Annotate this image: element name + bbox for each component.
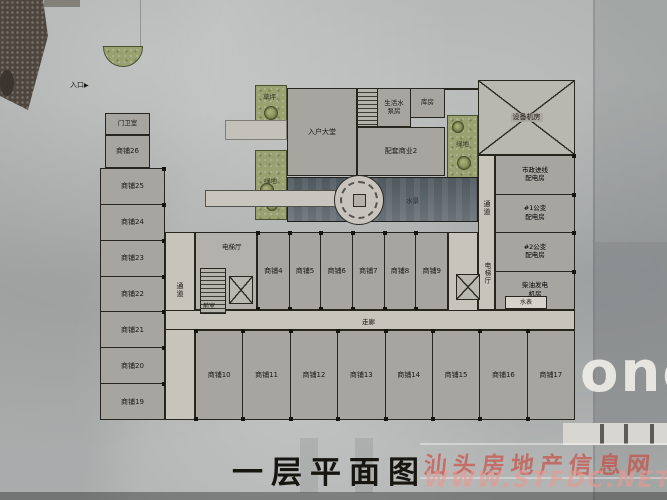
- shop-label: 商铺17: [539, 370, 562, 380]
- shop-unit: 商铺19: [101, 384, 164, 419]
- shop-unit: 商铺11: [243, 331, 290, 419]
- shop-unit: 商铺5: [290, 233, 322, 309]
- utility-room: #1公变 配电房: [496, 195, 574, 234]
- shop-label: 商铺24: [121, 217, 144, 227]
- shop-label: 商铺7: [359, 266, 377, 276]
- lobby-label: 入户大堂: [308, 128, 336, 136]
- tree-icon: [457, 156, 471, 170]
- pump-room: 生活水 泵房: [377, 88, 411, 127]
- background-sign-text: ono: [580, 340, 667, 412]
- main-corridor-label: 走廊: [362, 316, 375, 326]
- shop-label: 商铺14: [397, 370, 420, 380]
- wall-segment: [445, 88, 478, 90]
- shop-label: 商铺4: [264, 266, 282, 276]
- utility-room: #2公变 配电房: [496, 233, 574, 272]
- water-feature-label: 水景: [406, 195, 419, 205]
- lawn-mid: 绿地: [255, 150, 287, 220]
- entrance-arrow-icon: ▶: [84, 82, 89, 89]
- entry-path: [225, 120, 287, 140]
- dark-corner-object: [0, 0, 100, 120]
- shop-unit: 商铺26: [105, 135, 150, 168]
- shop-label: 商铺19: [121, 397, 144, 407]
- footbridge: [205, 190, 336, 207]
- bottom-shadow: [0, 492, 667, 500]
- shop-unit: 商铺24: [101, 205, 164, 241]
- shop-unit: 商铺12: [291, 331, 338, 419]
- utility-room-label-line2: 配电房: [524, 252, 547, 259]
- storage-room: 库房: [410, 88, 445, 118]
- shop-unit: 商铺16: [480, 331, 527, 419]
- utility-room-label-line1: 柴油发电: [522, 282, 548, 289]
- shop-unit: 商铺10: [196, 331, 243, 419]
- elevator-shaft-right: [456, 274, 480, 300]
- shop-unit: 商铺9: [416, 233, 447, 309]
- watermark-url: WWW.STFDC.NET: [424, 468, 667, 493]
- shop-label: 商铺16: [492, 370, 515, 380]
- utility-rooms: 市政进线 配电房 #1公变 配电房 #2公变 配电房 柴油: [495, 155, 575, 310]
- shop-label: 商铺11: [255, 370, 278, 380]
- shop-unit: 商铺17: [528, 331, 574, 419]
- shop-label: 商铺15: [445, 370, 468, 380]
- tree-icon: [264, 106, 278, 120]
- storage-label: 库房: [421, 99, 434, 107]
- retail2-label: 配套商业2: [385, 147, 417, 155]
- shop-label: 商铺13: [350, 370, 373, 380]
- fountain: [334, 175, 384, 225]
- corridor-right: [478, 155, 495, 310]
- gatehouse-label: 门卫室: [118, 120, 138, 128]
- shop-unit: 商铺23: [101, 241, 164, 277]
- utility-room-label-line2: 配电房: [524, 214, 547, 221]
- shop-label: 商铺8: [391, 266, 409, 276]
- utility-room-label-line2: 配电房: [522, 175, 548, 182]
- equipment-label: 设备机房: [511, 113, 543, 121]
- water-meter-label: 水表: [520, 299, 532, 306]
- shop-unit: 商铺4: [258, 233, 290, 309]
- shop-unit: 商铺6: [321, 233, 353, 309]
- shop-label: 商铺25: [121, 181, 144, 191]
- lawn-label: 草坪: [263, 91, 276, 101]
- shop-unit: 商铺15: [433, 331, 480, 419]
- entrance-label: 入口: [70, 81, 84, 89]
- shop-unit: 商铺20: [101, 348, 164, 384]
- equipment-room: 设备机房: [478, 80, 575, 155]
- shop-unit: 商铺21: [101, 312, 164, 348]
- plan-title: 一层平面图: [232, 447, 427, 492]
- dark-edge-strip: [44, 0, 80, 7]
- floorplan-photo: ono 入口▶ 门卫室 商铺26 商铺25 商铺24 商铺23: [0, 0, 667, 500]
- shop-label: 商铺26: [116, 147, 139, 155]
- shop-label: 商铺23: [121, 253, 144, 263]
- railing-post: [600, 424, 604, 444]
- light-joint-line: [420, 443, 667, 445]
- shop-label: 商铺21: [121, 325, 144, 335]
- dark-blob: [0, 70, 14, 96]
- railing-post: [624, 424, 628, 444]
- left-wing-shops: 商铺25 商铺24 商铺23 商铺22 商铺21 商铺20 商铺19: [100, 168, 165, 420]
- elevator-hall-left-label: 电梯厅: [222, 241, 242, 251]
- upper-shops-row: 商铺4 商铺5 商铺6 商铺7 商铺8 商铺9: [257, 232, 448, 310]
- elevator-hall-right-label: 电梯厅: [482, 262, 492, 285]
- shop-label: 商铺5: [296, 266, 314, 276]
- shop-unit: 商铺22: [101, 277, 164, 313]
- retail2-room: 配套商业2: [357, 127, 445, 176]
- board-joint-vertical: [140, 0, 141, 47]
- utility-room-label-line1: #1公变: [524, 205, 547, 212]
- lawn-semicircle: [103, 46, 143, 67]
- shop-label: 商铺6: [327, 266, 345, 276]
- shop-unit: 商铺25: [101, 169, 164, 205]
- lower-shops-row: 商铺10 商铺11 商铺12 商铺13 商铺14 商铺15 商铺16: [195, 330, 575, 420]
- shop-unit: 商铺14: [386, 331, 433, 419]
- shop-label: 商铺12: [302, 370, 325, 380]
- railing-post: [650, 424, 654, 444]
- corridor-right-label: 通道: [482, 200, 492, 216]
- shop-label: 商铺22: [121, 289, 144, 299]
- tree-icon: [452, 121, 464, 133]
- fountain-center: [353, 194, 366, 207]
- lobby-room: 入户大堂: [287, 88, 357, 176]
- entrance-marker: 入口▶: [70, 80, 89, 90]
- vestibule-label: 前室: [203, 301, 215, 310]
- stair-north: [357, 88, 378, 127]
- shop-label: 商铺20: [121, 361, 144, 371]
- elevator-shaft-left: [229, 276, 253, 304]
- corridor-left-label: 通道: [175, 282, 185, 298]
- pump-room-label-line2: 泵房: [384, 108, 404, 115]
- shop-unit: 商铺13: [338, 331, 385, 419]
- water-meter-box: 水表: [505, 296, 547, 309]
- shop-label: 商铺10: [208, 370, 231, 380]
- utility-room: 市政进线 配电房: [496, 156, 574, 195]
- pump-room-label-line1: 生活水: [384, 100, 404, 107]
- lawn-label: 绿地: [456, 138, 469, 148]
- shop-unit: 商铺7: [353, 233, 385, 309]
- shop-label: 商铺9: [422, 266, 440, 276]
- shop-unit: 商铺8: [385, 233, 417, 309]
- gatehouse-room: 门卫室: [105, 113, 150, 135]
